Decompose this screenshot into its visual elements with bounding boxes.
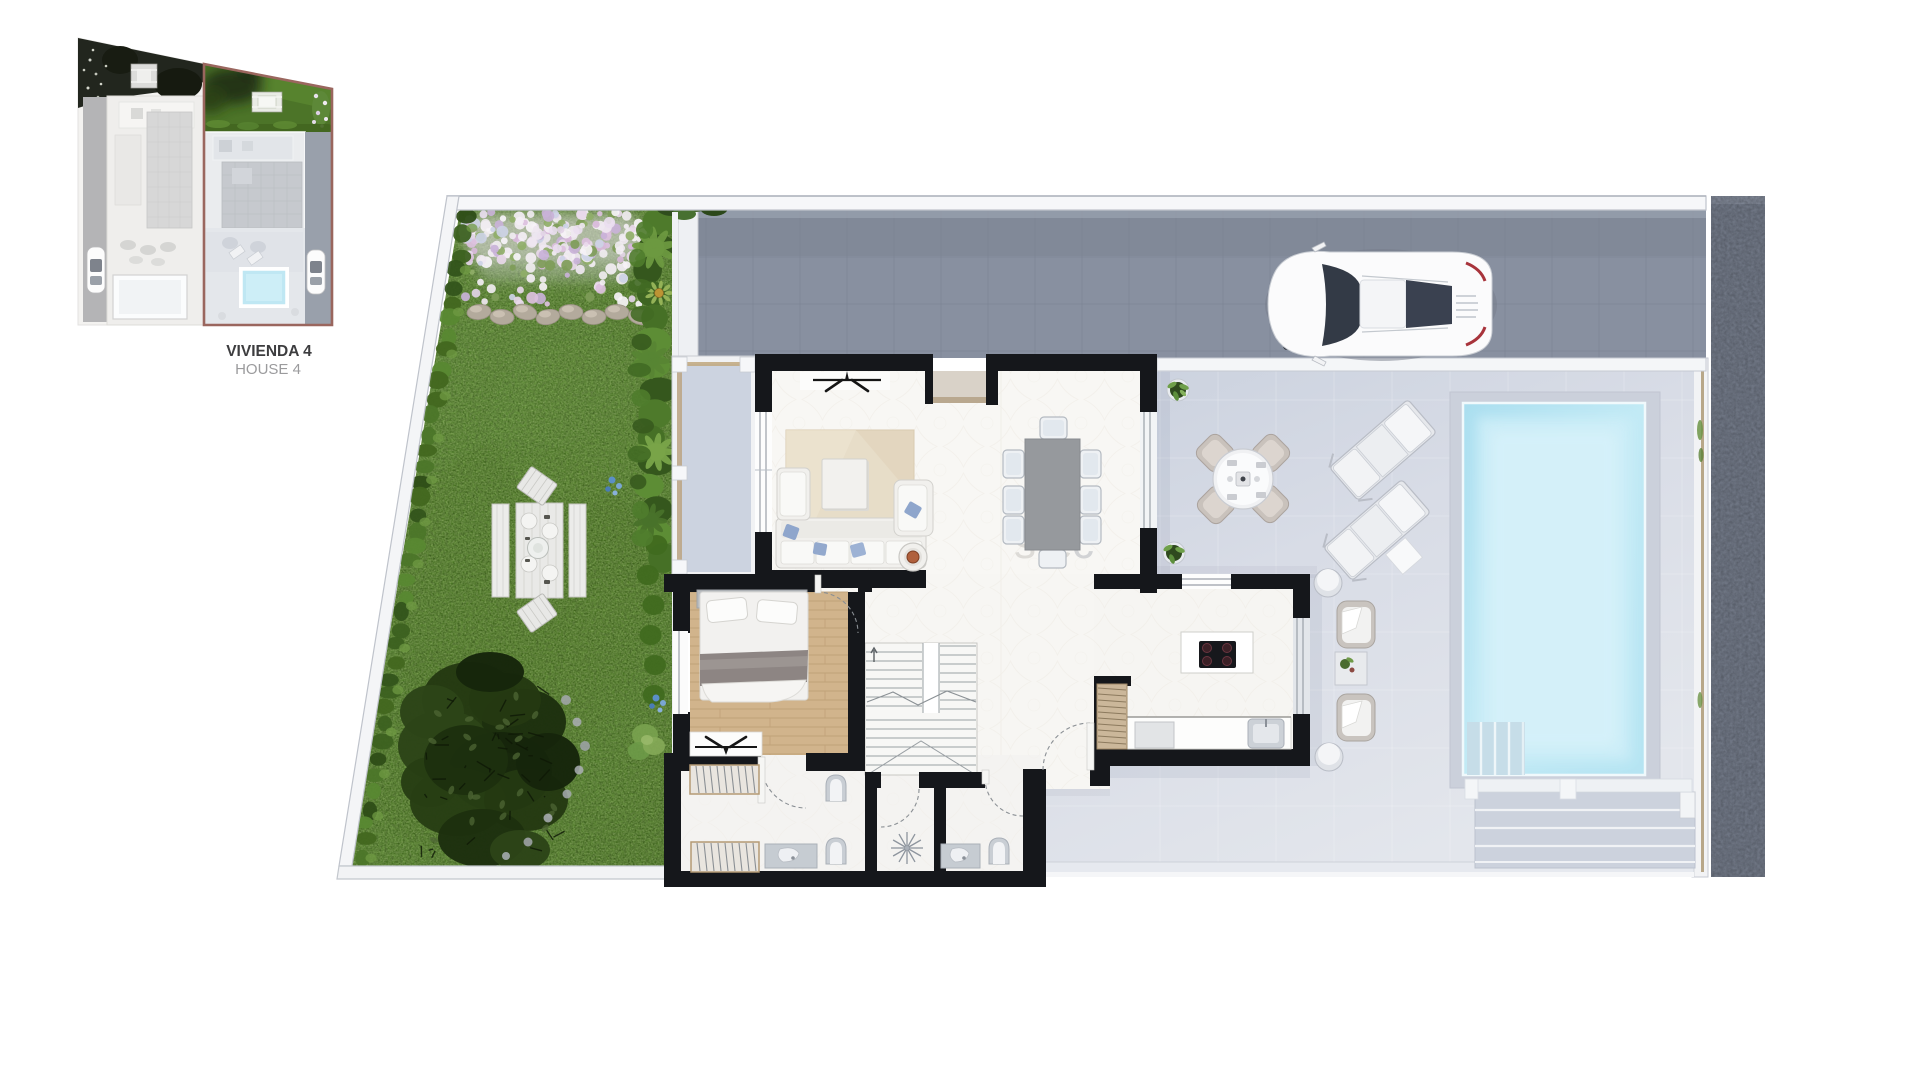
svg-text:VIVIENDA 4: VIVIENDA 4 (226, 343, 312, 360)
svg-text:HOUSE 4: HOUSE 4 (235, 361, 301, 378)
